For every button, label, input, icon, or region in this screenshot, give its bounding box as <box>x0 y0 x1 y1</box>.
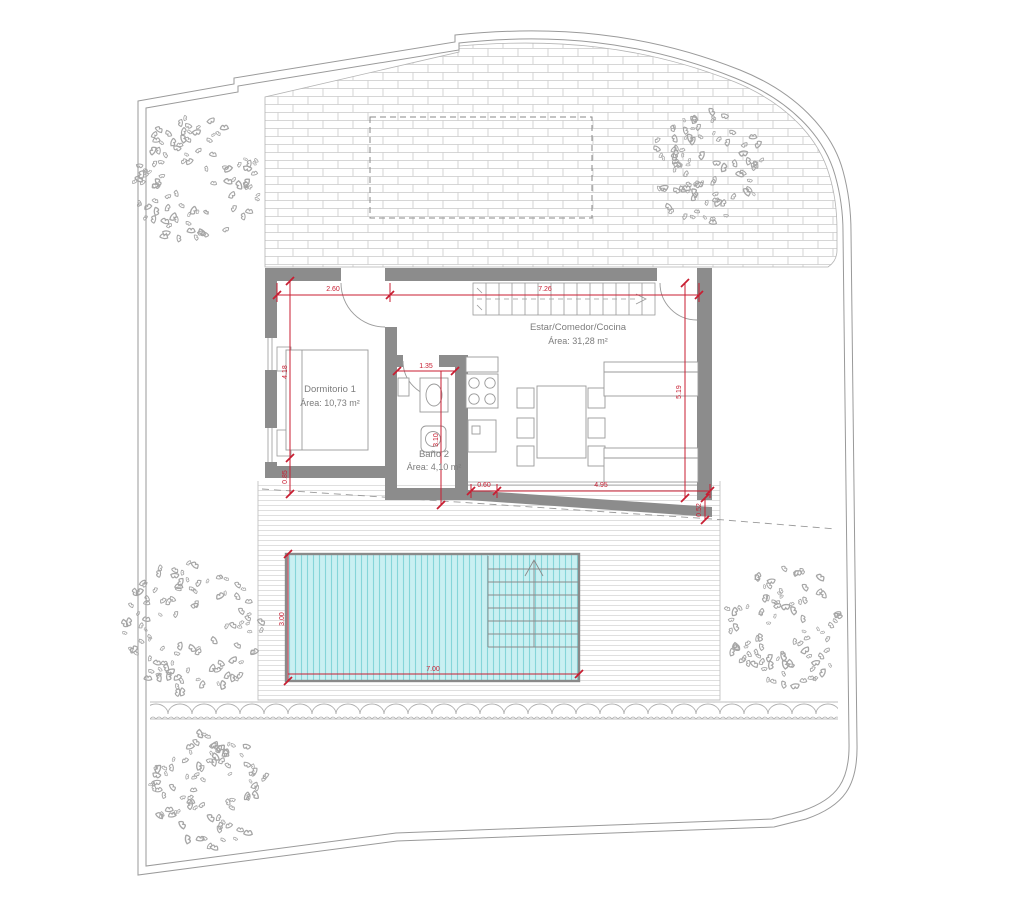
dim-right-offset: 0.52 <box>696 503 703 517</box>
oven <box>468 420 496 452</box>
chair <box>517 388 534 408</box>
kitchen <box>466 357 498 452</box>
chair <box>517 418 534 438</box>
sofa-bottom <box>604 448 698 482</box>
dim-living-glass-width: 4.95 <box>594 482 608 489</box>
floor-plan-page: 2.60 7.26 4.18 0.85 1.35 3.10 0.60 4.95 … <box>0 0 1024 919</box>
dim-bedroom-width: 2.60 <box>326 286 340 293</box>
floor-plan-drawing: 2.60 7.26 4.18 0.85 1.35 3.10 0.60 4.95 … <box>0 0 1024 919</box>
dim-pool-length: 7.00 <box>426 666 440 673</box>
stove <box>466 374 498 408</box>
dim-bedroom-depth: 4.18 <box>282 365 289 379</box>
washbasin <box>420 378 448 412</box>
bedroom-name: Dormitorio 1 <box>304 384 356 395</box>
dim-terrace-offset: 0.60 <box>477 482 491 489</box>
dim-pool-width: 3.00 <box>279 612 286 626</box>
bath-shelf <box>398 378 409 396</box>
chair <box>588 418 605 438</box>
stairs <box>473 283 655 315</box>
kitchen-sink-counter <box>466 357 498 372</box>
chair <box>517 446 534 466</box>
chair <box>588 446 605 466</box>
dim-bathroom-width: 1.35 <box>419 363 433 370</box>
dining-table <box>537 386 586 458</box>
dining-set <box>517 386 605 466</box>
dim-living-width: 7.26 <box>538 286 552 293</box>
bedroom-area: Área: 10,73 m² <box>300 398 360 408</box>
sofa-top <box>604 362 698 396</box>
pool <box>286 554 579 681</box>
living-room-area: Área: 31,28 m² <box>548 336 608 346</box>
bathroom-area: Área: 4,10 m² <box>407 462 462 472</box>
living-room-name: Estar/Comedor/Cocina <box>530 322 627 333</box>
chair <box>588 388 605 408</box>
dim-right-depth: 5.19 <box>676 385 683 399</box>
dim-left-offset: 0.85 <box>282 470 289 484</box>
stone-band <box>150 702 838 719</box>
dim-bathroom-depth: 3.10 <box>433 433 440 447</box>
bathroom-name: Baño 2 <box>419 449 449 460</box>
